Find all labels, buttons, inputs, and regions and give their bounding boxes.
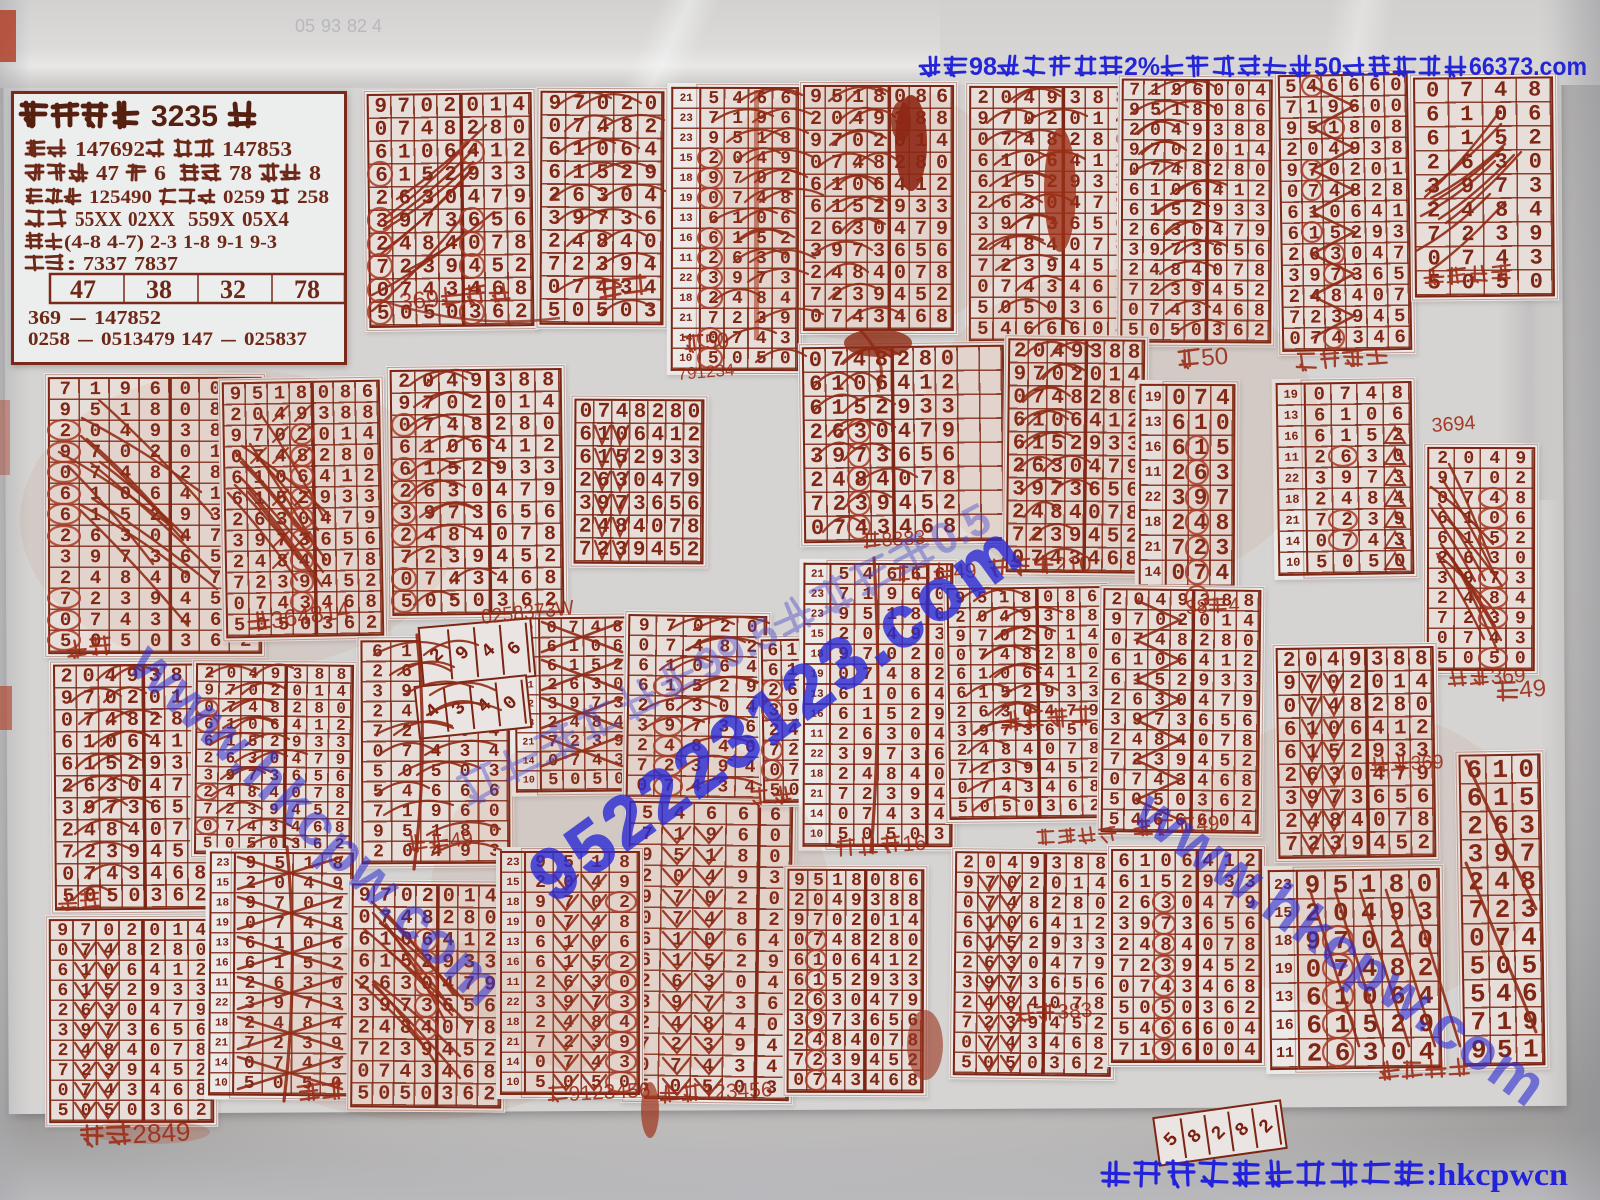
svg-text:210: 210 <box>1054 551 1092 578</box>
svg-text:369: 369 <box>398 286 440 316</box>
svg-text:82: 82 <box>347 16 367 36</box>
svg-text:147852: 147852 <box>94 307 161 329</box>
svg-text:47: 47 <box>96 161 119 185</box>
svg-text:32: 32 <box>220 275 246 304</box>
svg-text:-: - <box>68 307 88 329</box>
svg-text:4-7): 4-7) <box>107 232 144 253</box>
svg-text:38: 38 <box>146 275 172 304</box>
svg-text:3694: 3694 <box>1431 412 1476 437</box>
svg-text:(4-8: (4-8 <box>64 232 101 253</box>
svg-text:4: 4 <box>372 16 382 36</box>
svg-text:369: 369 <box>1410 751 1444 775</box>
svg-text:50: 50 <box>704 327 730 354</box>
svg-text:9-3: 9-3 <box>250 232 277 253</box>
svg-text:559X: 559X <box>188 207 235 231</box>
svg-text:-: - <box>76 329 95 350</box>
svg-text:2-3: 2-3 <box>150 232 177 253</box>
svg-text:9-1: 9-1 <box>217 232 244 253</box>
svg-text:-: - <box>219 329 238 350</box>
svg-text:49: 49 <box>449 827 474 852</box>
svg-text:78: 78 <box>294 275 320 304</box>
svg-text:4: 4 <box>1228 594 1240 617</box>
svg-text:9123456: 9123456 <box>568 1079 651 1106</box>
svg-text:05X4: 05X4 <box>242 207 289 231</box>
svg-text:6: 6 <box>154 161 166 185</box>
svg-text:0258373W: 0258373W <box>480 596 575 629</box>
svg-text:147: 147 <box>181 329 214 350</box>
svg-text::hkcpwcn: :hkcpwcn <box>1426 1156 1568 1192</box>
svg-text:025837: 025837 <box>244 329 308 350</box>
svg-text:369: 369 <box>28 307 61 329</box>
svg-text:2%: 2% <box>1124 53 1160 81</box>
svg-text:50: 50 <box>1200 343 1229 372</box>
svg-text:0258: 0258 <box>28 329 70 350</box>
svg-text:147692: 147692 <box>75 137 145 161</box>
svg-text:02XX: 02XX <box>128 207 175 231</box>
svg-text:66373.com: 66373.com <box>1469 53 1587 81</box>
svg-text:125490: 125490 <box>89 187 152 208</box>
svg-text:791234: 791234 <box>677 360 735 384</box>
svg-text:7337: 7337 <box>83 253 127 275</box>
svg-text:258: 258 <box>297 187 329 208</box>
svg-text:123456: 123456 <box>702 1078 773 1105</box>
svg-text:1-8: 1-8 <box>183 232 210 253</box>
svg-text:7837: 7837 <box>134 253 178 275</box>
svg-text:383: 383 <box>1057 999 1094 1024</box>
svg-text:05: 05 <box>295 16 315 36</box>
svg-text:38: 38 <box>1185 596 1208 619</box>
svg-text:93: 93 <box>321 16 341 36</box>
svg-text:50: 50 <box>1314 53 1342 81</box>
svg-text:147853: 147853 <box>222 137 292 161</box>
svg-text:49: 49 <box>1518 675 1547 704</box>
svg-text:3235: 3235 <box>151 100 218 133</box>
svg-text::: : <box>66 253 77 275</box>
svg-text:78: 78 <box>229 161 252 185</box>
svg-text:55XX: 55XX <box>75 207 122 231</box>
svg-text:16: 16 <box>901 830 927 857</box>
svg-text:0513479: 0513479 <box>101 329 175 350</box>
svg-text:47: 47 <box>70 275 96 304</box>
svg-text:98: 98 <box>969 53 997 81</box>
svg-text:8: 8 <box>309 161 321 185</box>
svg-text:0259: 0259 <box>223 187 265 208</box>
svg-text:2849: 2849 <box>132 1116 191 1149</box>
